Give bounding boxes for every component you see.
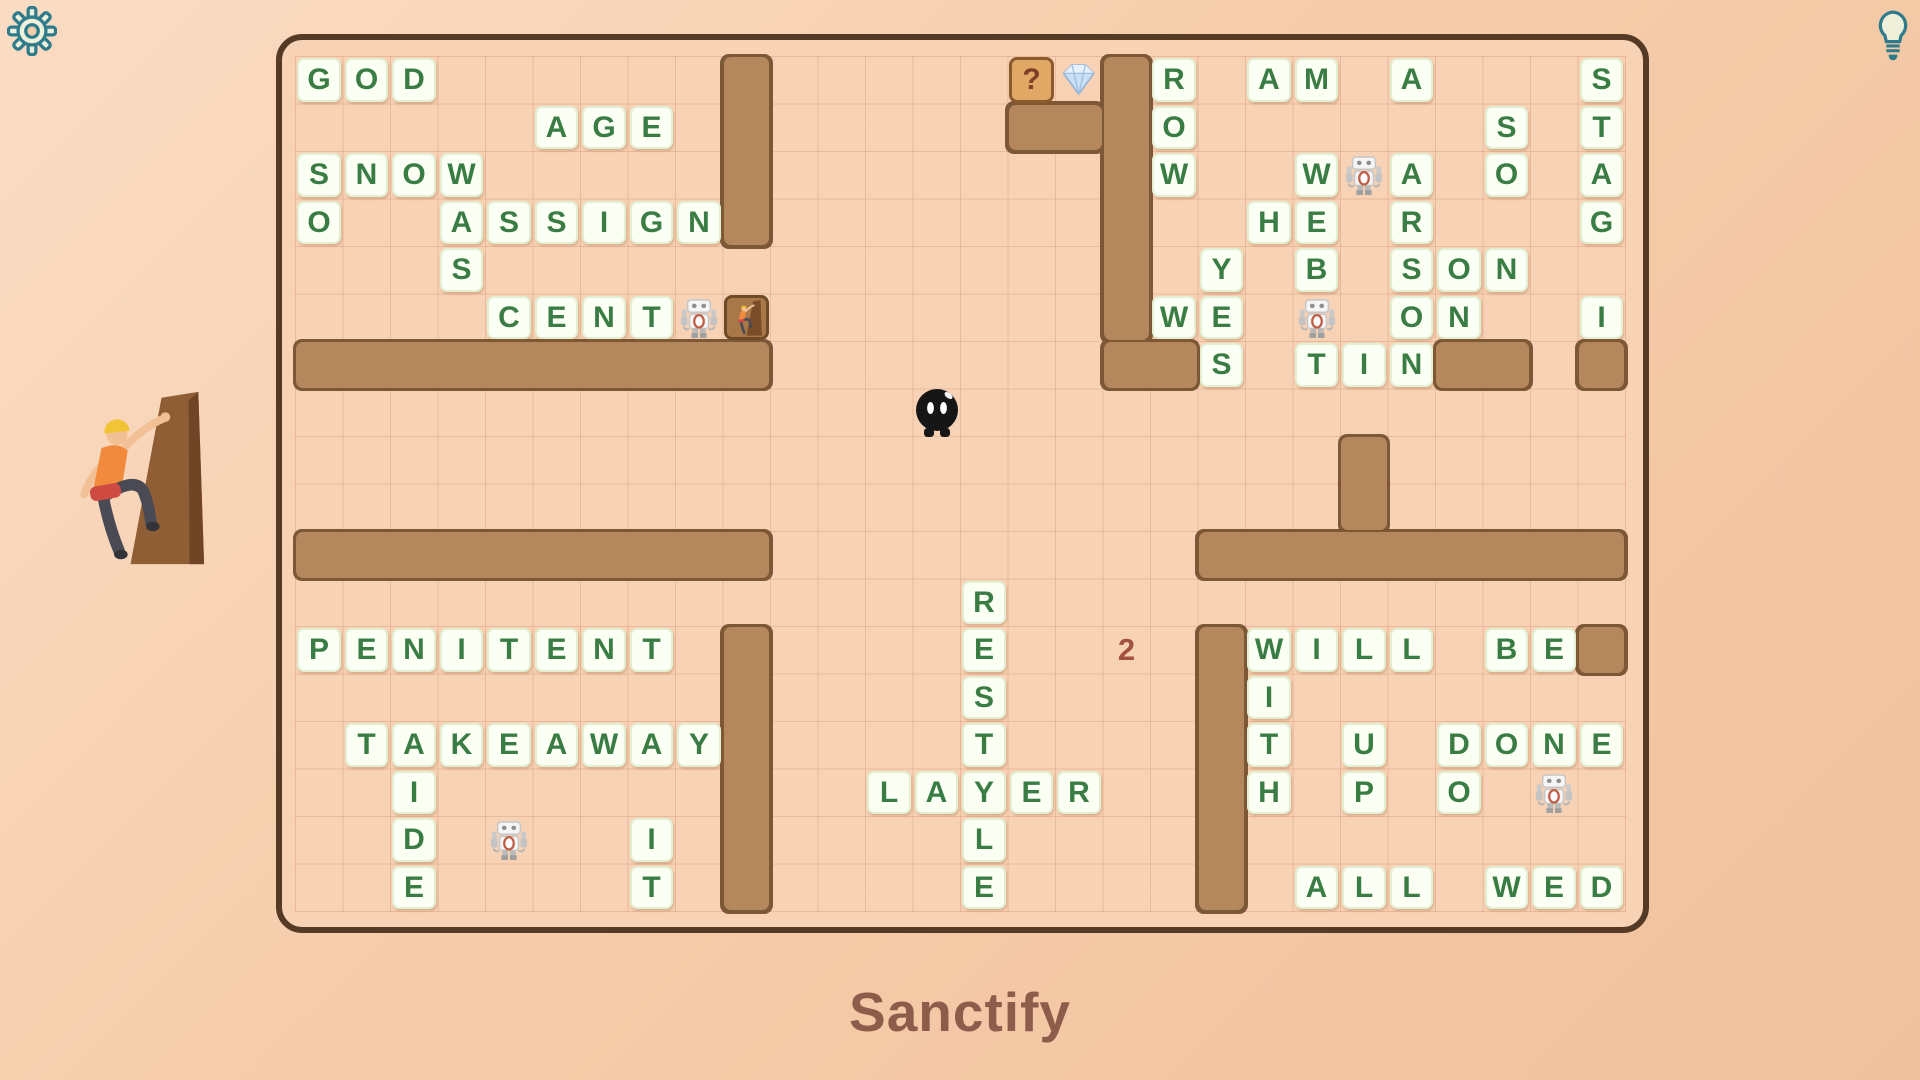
tile-letter: O: [1447, 255, 1470, 285]
tile-letter: E: [974, 635, 994, 665]
letter-tile: P: [297, 628, 341, 672]
tile-letter: L: [1402, 873, 1420, 903]
letter-tile: W: [1152, 153, 1196, 197]
question-mark: ?: [1022, 63, 1040, 97]
letter-tile: I: [1295, 628, 1339, 672]
wall-block: [1104, 57, 1150, 340]
letter-tile: W: [440, 153, 484, 197]
letter-tile: L: [1390, 628, 1434, 672]
tile-letter: N: [403, 635, 425, 665]
tile-letter: A: [451, 208, 473, 238]
letter-tile: S: [1485, 106, 1529, 150]
tile-letter: N: [356, 160, 378, 190]
tile-letter: W: [447, 160, 475, 190]
tile-letter: N: [1496, 255, 1518, 285]
letter-tile: O: [345, 58, 389, 102]
tile-letter: O: [307, 208, 330, 238]
tile-letter: T: [642, 873, 660, 903]
tile-letter: E: [641, 113, 661, 143]
letter-tile: Y: [1200, 248, 1244, 292]
letter-tile: T: [962, 723, 1006, 767]
letter-tile: U: [1342, 723, 1386, 767]
tile-letter: K: [451, 730, 473, 760]
letter-tile: E: [1010, 771, 1054, 815]
tile-letter: A: [1591, 160, 1613, 190]
diamond-icon: [1057, 61, 1101, 99]
letter-tile: H: [1247, 771, 1291, 815]
tile-letter: A: [1258, 65, 1280, 95]
letter-tile: S: [1200, 343, 1244, 387]
tile-letter: R: [1401, 208, 1423, 238]
letter-tile: R: [962, 581, 1006, 625]
letter-tile: T: [1247, 723, 1291, 767]
letter-tile: B: [1295, 248, 1339, 292]
tile-letter: E: [546, 635, 566, 665]
robot-icon: [680, 297, 718, 339]
letter-tile: A: [1295, 866, 1339, 910]
tile-letter: N: [1543, 730, 1565, 760]
wall-block: [1579, 342, 1625, 388]
tile-letter: O: [1495, 160, 1518, 190]
letter-tile: I: [392, 771, 436, 815]
tile-letter: A: [926, 778, 948, 808]
tile-letter: A: [641, 730, 663, 760]
letter-tile: S: [297, 153, 341, 197]
tile-letter: L: [1355, 873, 1373, 903]
tile-letter: C: [498, 303, 520, 333]
letter-tile: R: [1152, 58, 1196, 102]
tile-letter: S: [546, 208, 566, 238]
tile-letter: E: [1211, 303, 1231, 333]
letter-tile: N: [1390, 343, 1434, 387]
tile-letter: S: [1401, 255, 1421, 285]
tile-letter: L: [880, 778, 898, 808]
letter-tile: W: [1247, 628, 1291, 672]
tile-letter: E: [1021, 778, 1041, 808]
robot-obstacle: [1344, 153, 1384, 197]
current-word-label: Sanctify: [0, 980, 1920, 1044]
tile-letter: N: [688, 208, 710, 238]
letter-tile: P: [1342, 771, 1386, 815]
letter-tile: I: [582, 201, 626, 245]
letter-tile: Y: [677, 723, 721, 767]
tile-letter: O: [1162, 113, 1185, 143]
climber-icon: [55, 390, 210, 568]
tile-letter: H: [1258, 208, 1280, 238]
letter-tile: O: [1390, 296, 1434, 340]
robot-obstacle: [1297, 296, 1337, 340]
tile-letter: E: [404, 873, 424, 903]
wall-block: [296, 342, 769, 388]
letter-tile: N: [1485, 248, 1529, 292]
letter-tile: G: [297, 58, 341, 102]
tile-letter: E: [1544, 635, 1564, 665]
letter-tile: A: [392, 723, 436, 767]
hint-button[interactable]: [1872, 8, 1914, 67]
letter-tile: E: [1580, 723, 1624, 767]
letter-tile: L: [1342, 628, 1386, 672]
wall-block: [724, 627, 770, 910]
letter-tile: E: [630, 106, 674, 150]
tile-letter: E: [546, 303, 566, 333]
letter-tile: R: [1390, 201, 1434, 245]
letter-tile: A: [915, 771, 959, 815]
robot-icon: [1345, 154, 1383, 196]
tile-letter: T: [642, 635, 660, 665]
tile-letter: N: [593, 303, 615, 333]
letter-tile: O: [297, 201, 341, 245]
wall-block: [1009, 105, 1102, 151]
tile-letter: T: [500, 635, 518, 665]
wall-block: [1341, 437, 1387, 530]
letter-tile: A: [1390, 58, 1434, 102]
letter-tile: T: [345, 723, 389, 767]
letter-tile: E: [487, 723, 531, 767]
letter-tile: L: [1342, 866, 1386, 910]
letter-tile: O: [1152, 106, 1196, 150]
letter-tile: N: [1437, 296, 1481, 340]
robot-obstacle: [489, 818, 529, 862]
letter-tile: I: [1580, 296, 1624, 340]
letter-tile: W: [582, 723, 626, 767]
tile-letter: L: [1402, 635, 1420, 665]
tile-letter: R: [1163, 65, 1185, 95]
letter-tile: S: [1580, 58, 1624, 102]
tile-letter: I: [457, 635, 465, 665]
letter-tile: A: [535, 106, 579, 150]
tile-letter: L: [1355, 635, 1373, 665]
letter-tile: Y: [962, 771, 1006, 815]
ball-character[interactable]: [912, 386, 962, 440]
tile-letter: O: [402, 160, 425, 190]
robot-obstacle: [1534, 771, 1574, 815]
letter-tile: N: [677, 201, 721, 245]
climber-illustration: [55, 390, 210, 573]
tile-letter: S: [1591, 65, 1611, 95]
tile-letter: A: [403, 730, 425, 760]
tile-letter: O: [1447, 778, 1470, 808]
tile-letter: G: [1590, 208, 1613, 238]
letter-tile: L: [867, 771, 911, 815]
letter-tile: A: [1390, 153, 1434, 197]
letter-tile: O: [1437, 771, 1481, 815]
tile-letter: D: [403, 65, 425, 95]
tile-letter: D: [403, 825, 425, 855]
tile-letter: N: [1448, 303, 1470, 333]
letter-tile: E: [962, 628, 1006, 672]
letter-tile: A: [440, 201, 484, 245]
letter-tile: G: [582, 106, 626, 150]
letter-tile: S: [1390, 248, 1434, 292]
tile-letter: N: [1401, 350, 1423, 380]
letter-tile: T: [630, 866, 674, 910]
tile-letter: O: [1495, 730, 1518, 760]
tile-letter: R: [1068, 778, 1090, 808]
letter-tile: A: [535, 723, 579, 767]
tile-letter: D: [1448, 730, 1470, 760]
letter-tile: H: [1247, 201, 1291, 245]
tile-letter: M: [1304, 65, 1329, 95]
letter-tile: E: [1200, 296, 1244, 340]
letter-tile: C: [487, 296, 531, 340]
letter-tile: I: [440, 628, 484, 672]
tile-letter: E: [974, 873, 994, 903]
diamond-gem: [1057, 60, 1101, 100]
game-screen: { "hud": { "word": "Sanctify", "counter"…: [0, 0, 1920, 1080]
tile-letter: W: [1160, 160, 1188, 190]
tile-letter: S: [974, 683, 994, 713]
tile-letter: S: [1496, 113, 1516, 143]
tile-letter: T: [1260, 730, 1278, 760]
tile-letter: E: [1306, 208, 1326, 238]
tile-letter: Y: [1211, 255, 1231, 285]
tile-letter: Y: [974, 778, 994, 808]
gear-icon: [7, 6, 57, 56]
tile-letter: H: [1258, 778, 1280, 808]
tile-letter: W: [590, 730, 618, 760]
letter-tile: G: [630, 201, 674, 245]
letter-tile: D: [1437, 723, 1481, 767]
tile-letter: T: [357, 730, 375, 760]
letter-tile: W: [1152, 296, 1196, 340]
tile-letter: A: [546, 730, 568, 760]
letter-tile: N: [582, 628, 626, 672]
letter-tile: L: [962, 818, 1006, 862]
tile-letter: T: [975, 730, 993, 760]
letter-tile: B: [1485, 628, 1529, 672]
letter-tile: S: [487, 201, 531, 245]
tile-letter: P: [309, 635, 329, 665]
tile-letter: A: [1306, 873, 1328, 903]
tile-letter: G: [640, 208, 663, 238]
lightbulb-icon: [1872, 8, 1914, 62]
tile-letter: S: [451, 255, 471, 285]
letter-tile: I: [630, 818, 674, 862]
tile-letter: G: [307, 65, 330, 95]
tile-letter: T: [642, 303, 660, 333]
tile-letter: N: [593, 635, 615, 665]
letter-tile: G: [1580, 201, 1624, 245]
letter-tile: W: [1295, 153, 1339, 197]
letter-tile: T: [1295, 343, 1339, 387]
wall-block: [1199, 627, 1245, 910]
tile-letter: I: [647, 825, 655, 855]
wall-block: [1579, 627, 1625, 673]
tile-letter: W: [1255, 635, 1283, 665]
letter-tile: N: [345, 153, 389, 197]
letter-tile: E: [345, 628, 389, 672]
wall-block: [296, 532, 769, 578]
letter-tile: R: [1057, 771, 1101, 815]
tile-letter: O: [355, 65, 378, 95]
wall-block: [1199, 532, 1625, 578]
letter-tile: D: [392, 818, 436, 862]
letter-tile: W: [1485, 866, 1529, 910]
tile-letter: E: [1591, 730, 1611, 760]
settings-button[interactable]: [7, 6, 57, 61]
letter-tile: A: [1580, 153, 1624, 197]
tile-letter: I: [600, 208, 608, 238]
tile-letter: W: [1492, 873, 1520, 903]
letter-tile: M: [1295, 58, 1339, 102]
mystery-tile[interactable]: ?: [1009, 57, 1055, 103]
letter-tile: E: [1295, 201, 1339, 245]
letter-tile: E: [535, 628, 579, 672]
robot-icon: [1535, 772, 1573, 814]
tile-letter: U: [1353, 730, 1375, 760]
robot-icon: [490, 819, 528, 861]
tile-letter: E: [1544, 873, 1564, 903]
wall-block: [1104, 342, 1197, 388]
letter-tile: T: [1580, 106, 1624, 150]
tile-letter: A: [546, 113, 568, 143]
letter-tile: E: [392, 866, 436, 910]
letter-tile: L: [1390, 866, 1434, 910]
tile-letter: I: [1312, 635, 1320, 665]
letter-tile: K: [440, 723, 484, 767]
tile-letter: I: [1597, 303, 1605, 333]
tile-letter: B: [1306, 255, 1328, 285]
tile-letter: S: [309, 160, 329, 190]
tile-letter: L: [975, 825, 993, 855]
letter-tile: S: [535, 201, 579, 245]
tile-letter: P: [1354, 778, 1374, 808]
letter-tile: N: [1532, 723, 1576, 767]
tile-letter: O: [1400, 303, 1423, 333]
letter-tile: E: [962, 866, 1006, 910]
tile-letter: S: [1211, 350, 1231, 380]
letter-tile: E: [1532, 628, 1576, 672]
tile-letter: W: [1302, 160, 1330, 190]
letter-tile: N: [392, 628, 436, 672]
letter-tile: D: [392, 58, 436, 102]
tile-letter: A: [1401, 160, 1423, 190]
wall-block: [724, 57, 770, 245]
mini-climber-icon: [731, 299, 763, 337]
wall-block: [1436, 342, 1529, 388]
tile-letter: T: [1307, 350, 1325, 380]
tile-letter: T: [1592, 113, 1610, 143]
tile-letter: I: [1265, 683, 1273, 713]
letter-tile: T: [630, 628, 674, 672]
letter-tile: D: [1580, 866, 1624, 910]
letter-tile: A: [1247, 58, 1291, 102]
tile-letter: S: [499, 208, 519, 238]
letter-tile: T: [487, 628, 531, 672]
robot-icon: [1298, 297, 1336, 339]
letter-tile: E: [1532, 866, 1576, 910]
robot-obstacle: [679, 296, 719, 340]
letter-tile: I: [1247, 676, 1291, 720]
tile-letter: A: [1401, 65, 1423, 95]
tile-letter: I: [1360, 350, 1368, 380]
tile-letter: Y: [689, 730, 709, 760]
letter-tile: S: [440, 248, 484, 292]
tile-letter: R: [973, 588, 995, 618]
letter-tile: A: [630, 723, 674, 767]
tile-letter: E: [356, 635, 376, 665]
tile-letter: G: [592, 113, 615, 143]
tile-letter: I: [410, 778, 418, 808]
tile-letter: E: [499, 730, 519, 760]
letter-tile: T: [630, 296, 674, 340]
ball-icon: [912, 386, 962, 440]
letter-tile: E: [535, 296, 579, 340]
moves-counter: 2: [1103, 626, 1151, 674]
letter-tile: I: [1342, 343, 1386, 387]
letter-tile: N: [582, 296, 626, 340]
climber-door-tile: [724, 295, 770, 341]
letter-tile: O: [392, 153, 436, 197]
letter-tile: O: [1485, 723, 1529, 767]
letter-tile: O: [1437, 248, 1481, 292]
tile-letter: W: [1160, 303, 1188, 333]
tile-letter: B: [1496, 635, 1518, 665]
letter-tile: S: [962, 676, 1006, 720]
tile-letter: D: [1591, 873, 1613, 903]
letter-tile: O: [1485, 153, 1529, 197]
